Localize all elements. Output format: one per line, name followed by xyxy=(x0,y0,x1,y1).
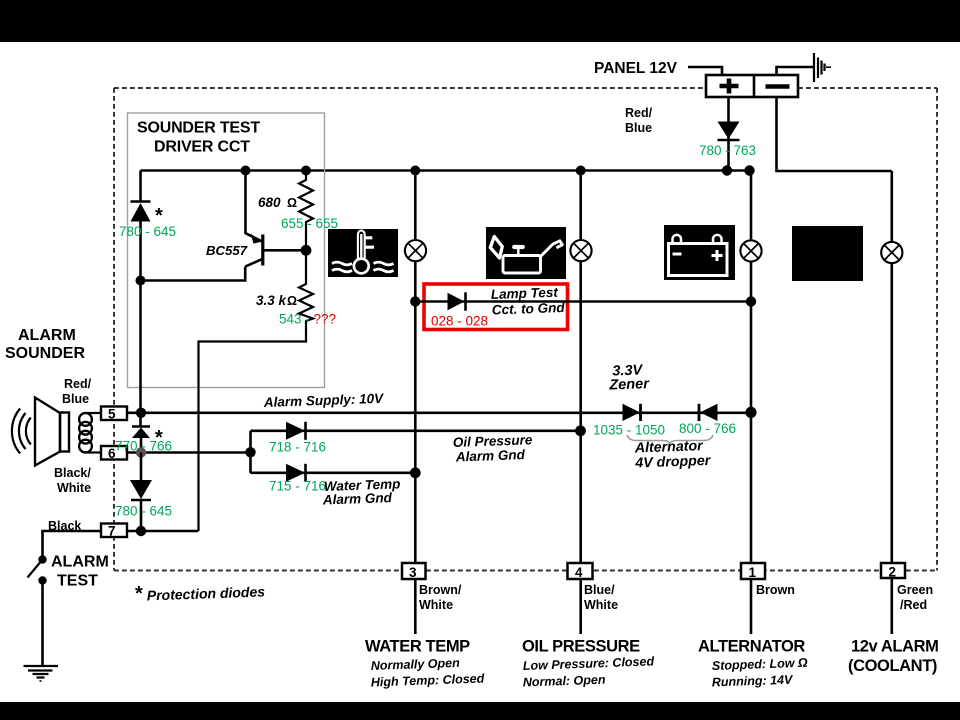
svg-text:715 - 716: 715 - 716 xyxy=(269,479,326,494)
svg-text:718 - 716: 718 - 716 xyxy=(269,440,326,455)
svg-text:White: White xyxy=(584,598,618,612)
svg-text:Green: Green xyxy=(897,583,933,597)
svg-text:(COOLANT): (COOLANT) xyxy=(848,657,937,675)
svg-text:Red/: Red/ xyxy=(625,106,653,120)
svg-text:Normal: Open: Normal: Open xyxy=(523,673,606,690)
svg-text:543 - ???: 543 - ??? xyxy=(279,312,336,327)
svg-text:TEST: TEST xyxy=(57,573,98,590)
svg-text:800 - 766: 800 - 766 xyxy=(679,421,736,436)
svg-text:655 - 655: 655 - 655 xyxy=(281,216,338,231)
svg-text:Brown/: Brown/ xyxy=(419,583,462,597)
svg-text:Black/: Black/ xyxy=(54,466,91,480)
svg-text:7: 7 xyxy=(108,524,116,539)
svg-text:3.3 k: 3.3 k xyxy=(256,293,288,308)
svg-text:1035 - 1050: 1035 - 1050 xyxy=(593,423,665,438)
svg-text:Blue: Blue xyxy=(62,392,89,406)
svg-text:SOUNDER: SOUNDER xyxy=(5,345,85,362)
svg-text:Ω: Ω xyxy=(287,294,297,308)
svg-text:1: 1 xyxy=(749,565,757,580)
svg-text:ALARM: ALARM xyxy=(18,327,76,344)
svg-text:Blue/: Blue/ xyxy=(584,583,615,597)
svg-text:Cct. to Gnd: Cct. to Gnd xyxy=(492,300,566,318)
svg-text:Ω: Ω xyxy=(287,196,297,210)
svg-text:OIL PRESSURE: OIL PRESSURE xyxy=(522,638,640,656)
svg-text:5: 5 xyxy=(108,407,116,422)
svg-text:/Red: /Red xyxy=(900,598,927,612)
svg-text:ALTERNATOR: ALTERNATOR xyxy=(698,638,805,656)
svg-text:780 - 645: 780 - 645 xyxy=(115,504,172,519)
svg-text:DRIVER CCT: DRIVER CCT xyxy=(154,139,250,156)
svg-text:780 - 645: 780 - 645 xyxy=(119,224,176,239)
svg-text:Alarm Gnd: Alarm Gnd xyxy=(455,447,526,464)
svg-text:WATER TEMP: WATER TEMP xyxy=(365,638,470,656)
svg-text:BC557: BC557 xyxy=(206,243,248,258)
svg-text:White: White xyxy=(419,598,453,612)
svg-text:Zener: Zener xyxy=(608,376,650,393)
svg-text:*: * xyxy=(135,583,143,605)
svg-text:ALARM: ALARM xyxy=(51,554,109,571)
svg-text:780 - 763: 780 - 763 xyxy=(699,143,756,158)
svg-text:PANEL 12V: PANEL 12V xyxy=(594,60,678,77)
svg-text:3: 3 xyxy=(409,565,417,580)
svg-text:Lamp Test: Lamp Test xyxy=(491,285,559,302)
svg-text:12v ALARM: 12v ALARM xyxy=(851,638,938,656)
svg-text:Red/: Red/ xyxy=(64,377,92,391)
svg-text:680: 680 xyxy=(258,195,281,210)
svg-text:028 - 028: 028 - 028 xyxy=(431,314,488,329)
svg-text:Brown: Brown xyxy=(756,583,795,597)
svg-text:4V dropper: 4V dropper xyxy=(634,453,712,472)
svg-text:4: 4 xyxy=(575,565,583,580)
svg-text:Running: 14V: Running: 14V xyxy=(712,673,795,690)
svg-text:Alarm Gnd: Alarm Gnd xyxy=(322,490,393,507)
svg-text:Blue: Blue xyxy=(625,121,652,135)
svg-text:SOUNDER TEST: SOUNDER TEST xyxy=(137,120,260,137)
svg-text:2: 2 xyxy=(889,565,897,580)
svg-text:White: White xyxy=(57,481,91,495)
